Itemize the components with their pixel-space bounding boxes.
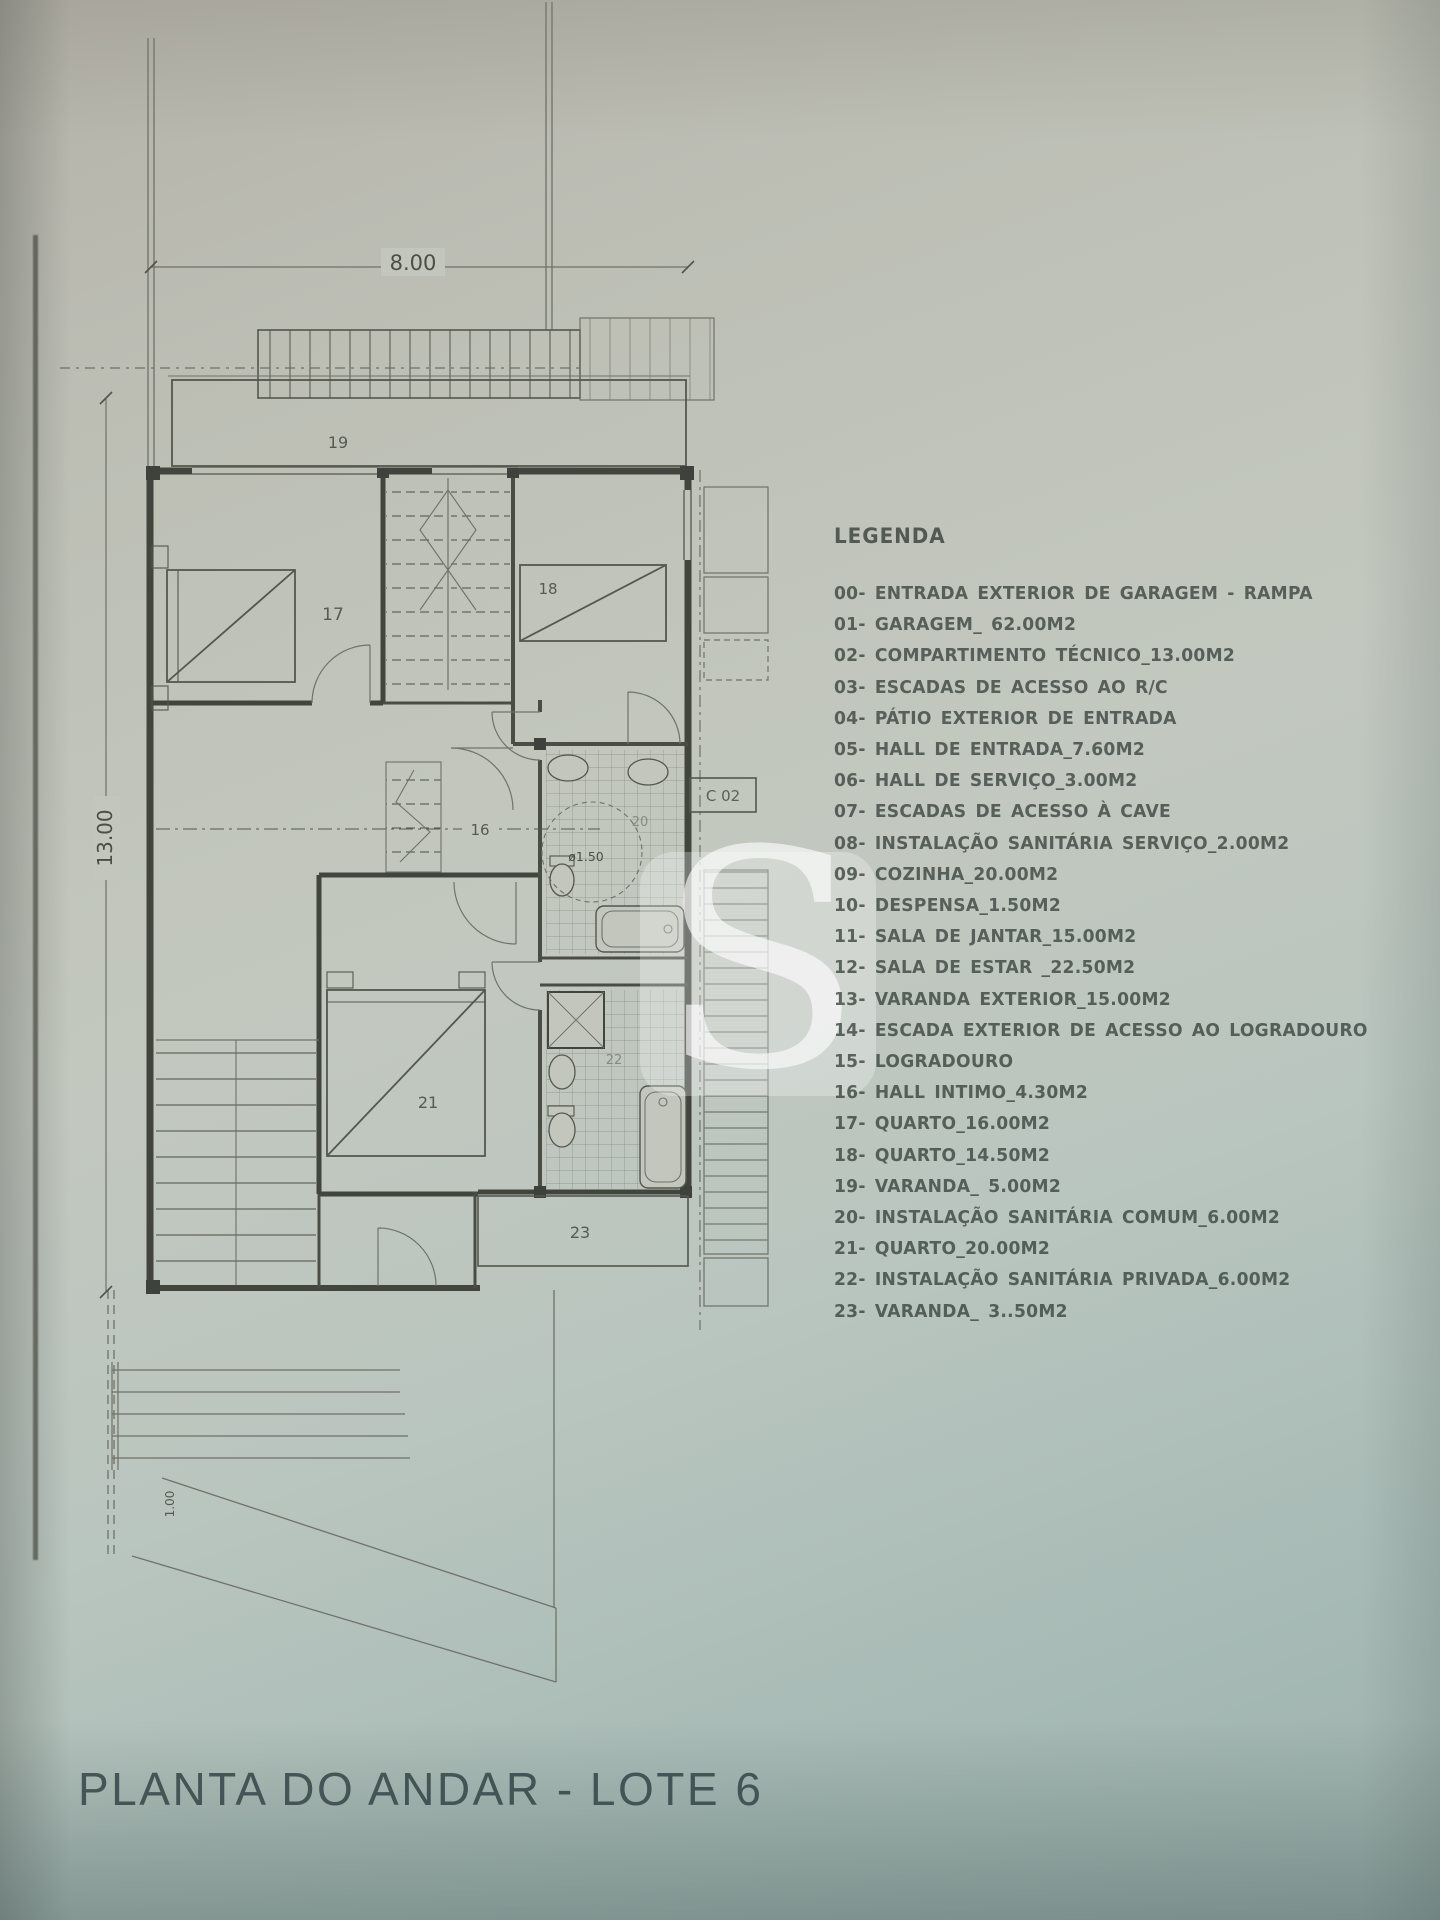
dim-depth-label: 13.00 xyxy=(93,809,117,866)
room-16-label: 16 xyxy=(470,821,489,839)
legend-item: 07- ESCADAS DE ACESSO À CAVE xyxy=(834,796,1290,827)
legend-item: 12- SALA DE ESTAR _22.50M2 xyxy=(834,952,1290,983)
legend-item: 03- ESCADAS DE ACESSO AO R/C xyxy=(834,672,1290,703)
legend-item: 13- VARANDA EXTERIOR_15.00M2 xyxy=(834,984,1290,1015)
room-17-label: 17 xyxy=(322,605,344,625)
lower-left-staircase xyxy=(156,1040,316,1285)
drawing-title: PLANTA DO ANDAR - LOTE 6 xyxy=(78,1762,763,1816)
room-22-label: 22 xyxy=(606,1053,623,1068)
legend-item: 15- LOGRADOURO xyxy=(834,1046,1290,1077)
top-stair-strip xyxy=(258,318,714,400)
legend-item: 09- COZINHA_20.00M2 xyxy=(834,859,1290,890)
room-21-label: 21 xyxy=(418,1093,438,1112)
legend-item: 19- VARANDA_ 5.00M2 xyxy=(834,1171,1290,1202)
room-19-label: 19 xyxy=(328,433,348,452)
bedroom-17 xyxy=(152,546,295,710)
legend-item: 14- ESCADA EXTERIOR DE ACESSO AO LOGRADO… xyxy=(834,1015,1290,1046)
room-18-label: 18 xyxy=(538,580,557,598)
dim-width-label: 8.00 xyxy=(390,251,437,275)
legend-item: 08- INSTALAÇÃO SANITÁRIA SERVIÇO_2.00M2 xyxy=(834,828,1290,859)
legend-item: 02- COMPARTIMENTO TÉCNICO_13.00M2 xyxy=(834,640,1290,671)
shower-diameter-label: ø1.50 xyxy=(568,849,604,864)
legend-panel: LEGENDA 00- ENTRADA EXTERIOR DE GARAGEM … xyxy=(834,524,1314,1327)
legend-item: 20- INSTALAÇÃO SANITÁRIA COMUM_6.00M2 xyxy=(834,1202,1290,1233)
legend-item: 04- PÁTIO EXTERIOR DE ENTRADA xyxy=(834,703,1290,734)
legend-item: 05- HALL DE ENTRADA_7.60M2 xyxy=(834,734,1290,765)
legend-items: 00- ENTRADA EXTERIOR DE GARAGEM - RAMPA … xyxy=(834,578,1290,1327)
bedroom-18 xyxy=(520,565,666,641)
exterior-staircase xyxy=(112,1362,410,1470)
paper-edge-line xyxy=(33,235,38,1560)
room-23-label: 23 xyxy=(570,1223,590,1242)
legend-item: 06- HALL DE SERVIÇO_3.00M2 xyxy=(834,765,1290,796)
legend-title: LEGENDA xyxy=(834,524,1290,548)
dim-entry-label: 1.00 xyxy=(163,1491,177,1518)
photographed-floor-plan-sheet: 8.00 13.00 1.00 xyxy=(0,0,1440,1920)
legend-item: 23- VARANDA_ 3..50M2 xyxy=(834,1296,1290,1327)
legend-item: 21- QUARTO_20.00M2 xyxy=(834,1233,1290,1264)
bedroom-21 xyxy=(327,972,485,1156)
legend-item: 10- DESPENSA_1.50M2 xyxy=(834,890,1290,921)
legend-item: 00- ENTRADA EXTERIOR DE GARAGEM - RAMPA xyxy=(834,578,1290,609)
legend-item: 18- QUARTO_14.50M2 xyxy=(834,1140,1290,1171)
lot-boundaries xyxy=(60,2,582,1682)
central-staircase xyxy=(386,478,510,872)
legend-item: 11- SALA DE JANTAR_15.00M2 xyxy=(834,921,1290,952)
legend-item: 17- QUARTO_16.00M2 xyxy=(834,1108,1290,1139)
hall-axis xyxy=(156,817,600,841)
legend-item: 16- HALL INTIMO_4.30M2 xyxy=(834,1077,1290,1108)
legend-item: 22- INSTALAÇÃO SANITÁRIA PRIVADA_6.00M2 xyxy=(834,1264,1290,1295)
legend-item: 01- GARAGEM_ 62.00M2 xyxy=(834,609,1290,640)
